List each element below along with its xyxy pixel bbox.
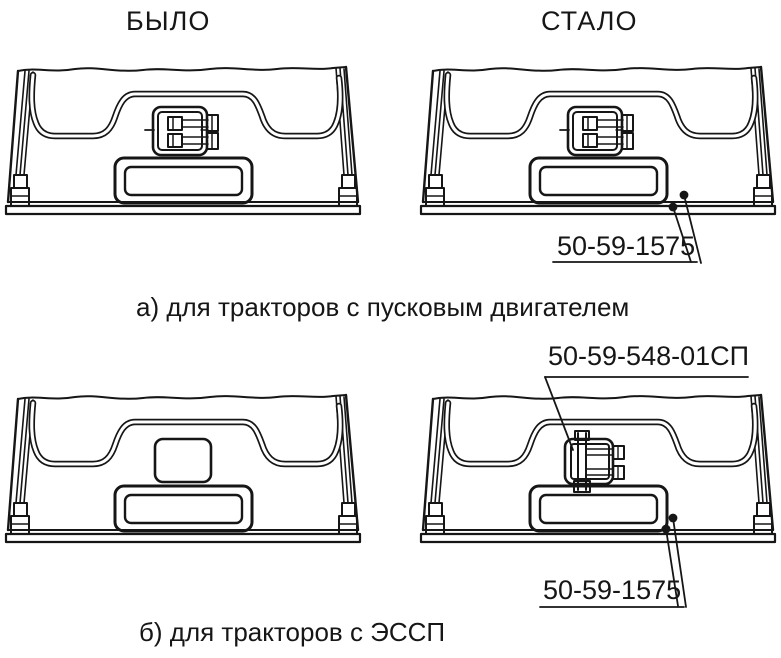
drawing-panel-after-a	[420, 63, 780, 223]
column-header-before: БЫЛО	[126, 8, 210, 35]
caption-row-a: а) для тракторов с пусковым двигателем	[136, 293, 629, 322]
callout-part-number-row-b: 50-59-1575	[543, 577, 681, 604]
wiring-connector	[560, 107, 633, 155]
clamped-connector	[565, 431, 624, 492]
drawing-panel-before-a	[5, 63, 365, 223]
panel-body	[6, 395, 360, 542]
drawing-panel-before-b	[5, 391, 365, 551]
square-opening	[155, 439, 211, 482]
caption-row-b: б) для тракторов с ЭССП	[139, 618, 445, 647]
wiring-connector	[145, 107, 218, 155]
figure-canvas: БЫЛО СТАЛО	[0, 0, 781, 658]
callout-part-number-row-a: 50-59-1575	[557, 233, 695, 260]
drawing-panel-after-b	[420, 391, 780, 551]
callout-part-number-connector: 50-59-548-01СП	[548, 343, 749, 370]
column-header-after: СТАЛО	[541, 8, 638, 35]
